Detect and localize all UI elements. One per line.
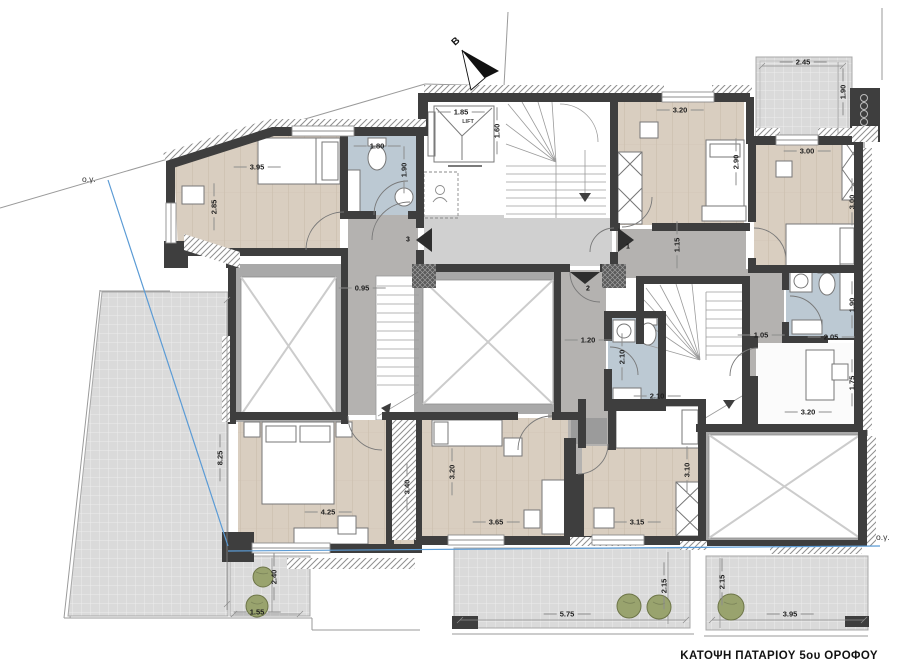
tree: [617, 594, 641, 618]
building-line-label-right: ο.γ.: [876, 532, 890, 542]
plan-svg: Β: [0, 0, 900, 672]
void-left: [232, 264, 344, 422]
washing-machine: [613, 320, 635, 342]
stairwell-main: [504, 100, 612, 218]
lift-label: LIFT: [462, 119, 474, 125]
washing-machine: [790, 270, 812, 292]
window: [252, 543, 330, 553]
window: [776, 135, 818, 145]
drawing-title: ΚΑΤΟΨΗ ΠΑΤΑΡΙΟΥ 5ου ΟΡΟΦΟΥ: [680, 650, 878, 662]
wardrobe: [618, 152, 642, 224]
corridor-upper-right-floor: [616, 229, 746, 278]
terrace-top-right: [756, 57, 852, 140]
tree: [253, 567, 273, 587]
void-bottom-right: [700, 426, 868, 546]
window: [292, 126, 354, 136]
north-label: Β: [450, 35, 463, 48]
building-line-label-left: ο.γ.: [82, 174, 96, 184]
terrace-left: [68, 292, 228, 616]
gray-closet-square: [571, 418, 607, 444]
nightstand: [182, 186, 204, 204]
window: [592, 535, 644, 545]
window: [166, 203, 176, 243]
stair-left: [376, 276, 420, 420]
lift-shaft: [424, 100, 504, 170]
tree: [718, 594, 744, 620]
lobby-floor: [424, 215, 612, 266]
window: [448, 535, 504, 545]
tree: [647, 595, 671, 619]
north-arrow: Β: [450, 35, 499, 90]
floor-plan-drawing: Β 3.952.851.801.901.851.603.202.902.451.…: [0, 0, 900, 672]
wc-dashed-area: [424, 172, 458, 218]
tree: [246, 595, 268, 617]
window: [662, 92, 714, 102]
